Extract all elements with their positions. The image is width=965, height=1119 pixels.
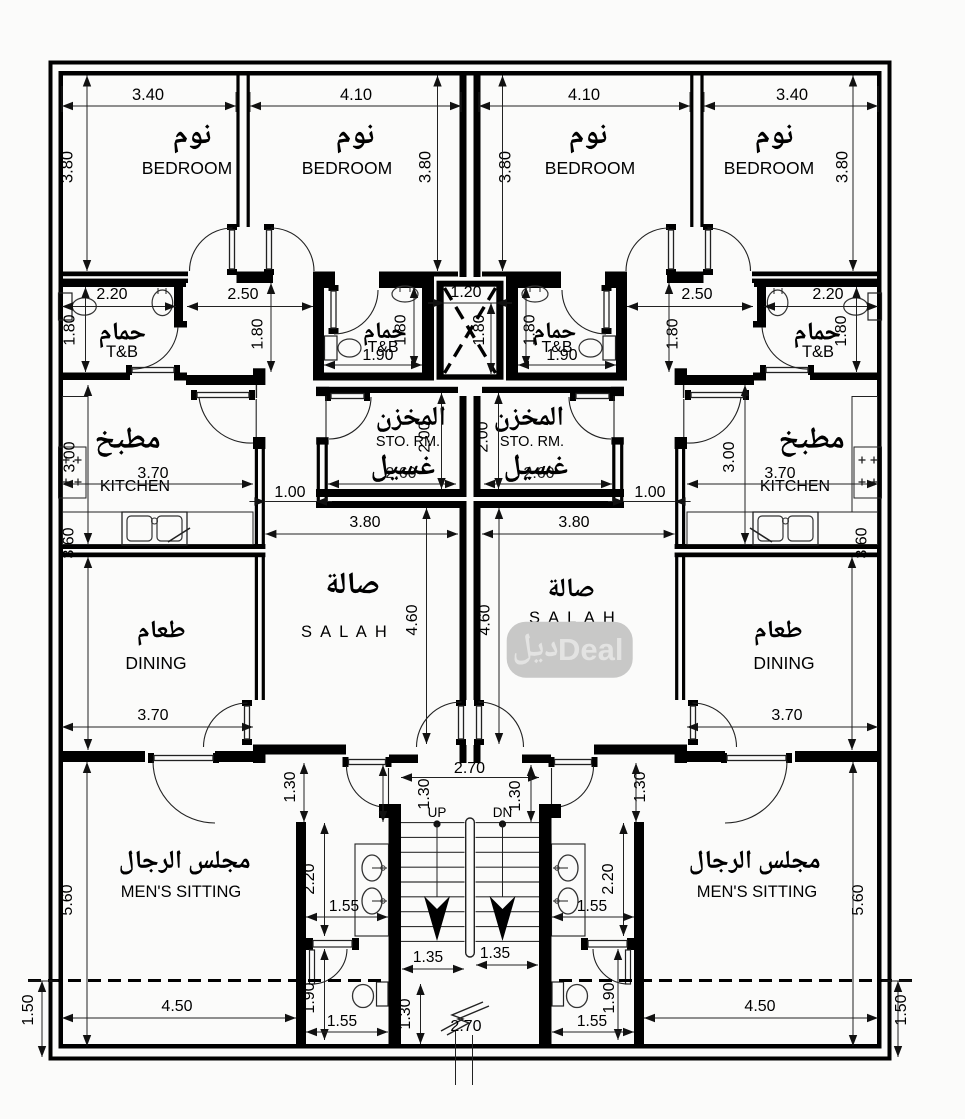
svg-text:1.30: 1.30 xyxy=(632,771,649,802)
svg-text:1.80: 1.80 xyxy=(522,314,539,345)
svg-text:UP: UP xyxy=(428,805,447,820)
svg-text:4.50: 4.50 xyxy=(161,998,192,1015)
svg-text:2.20: 2.20 xyxy=(301,863,318,894)
svg-text:3.80: 3.80 xyxy=(349,514,380,531)
svg-text:2.20: 2.20 xyxy=(600,863,617,894)
svg-text:3.70: 3.70 xyxy=(764,465,795,482)
svg-text:3.60: 3.60 xyxy=(61,527,78,558)
svg-text:1.90: 1.90 xyxy=(546,347,577,364)
svg-text:BEDROOM: BEDROOM xyxy=(142,158,232,178)
svg-text:1.30: 1.30 xyxy=(397,998,414,1029)
svg-text:1.80: 1.80 xyxy=(393,314,410,345)
svg-text:1.90: 1.90 xyxy=(362,347,393,364)
svg-text:1.50: 1.50 xyxy=(20,994,37,1025)
svg-text:1.55: 1.55 xyxy=(327,1013,357,1030)
svg-text:MEN'S SITTING: MEN'S SITTING xyxy=(697,883,818,901)
svg-text:3.80: 3.80 xyxy=(558,514,589,531)
svg-text:1.20: 1.20 xyxy=(450,284,481,301)
svg-text:3.80: 3.80 xyxy=(834,151,852,183)
svg-text:1.80: 1.80 xyxy=(62,314,79,345)
svg-text:3.00: 3.00 xyxy=(721,441,738,472)
svg-text:DINING: DINING xyxy=(753,653,814,673)
svg-text:3.70: 3.70 xyxy=(771,707,802,724)
svg-text:3.70: 3.70 xyxy=(137,707,168,724)
svg-text:4.10: 4.10 xyxy=(568,86,600,104)
svg-text:3.40: 3.40 xyxy=(132,86,164,104)
svg-text:T&B: T&B xyxy=(106,343,138,361)
svg-text:1.80: 1.80 xyxy=(471,314,488,345)
svg-text:3.80: 3.80 xyxy=(59,151,77,183)
svg-text:5.60: 5.60 xyxy=(59,884,76,915)
svg-text:1.90: 1.90 xyxy=(601,982,618,1013)
svg-text:3.40: 3.40 xyxy=(776,86,808,104)
svg-text:DN: DN xyxy=(493,805,513,820)
svg-text:3.80: 3.80 xyxy=(417,151,435,183)
svg-text:4.50: 4.50 xyxy=(744,998,775,1015)
svg-text:4.60: 4.60 xyxy=(477,604,494,635)
svg-text:3.60: 3.60 xyxy=(854,527,871,558)
svg-text:2.20: 2.20 xyxy=(96,286,127,303)
svg-text:T&B: T&B xyxy=(802,343,834,361)
svg-text:3.80: 3.80 xyxy=(497,151,515,183)
svg-text:1.35: 1.35 xyxy=(413,949,443,966)
svg-text:2.20: 2.20 xyxy=(812,286,843,303)
svg-text:BEDROOM: BEDROOM xyxy=(545,158,635,178)
svg-text:4.60: 4.60 xyxy=(404,604,421,635)
svg-text:3.00: 3.00 xyxy=(62,441,79,472)
svg-text:1.55: 1.55 xyxy=(577,1013,607,1030)
svg-text:BEDROOM: BEDROOM xyxy=(302,158,392,178)
svg-text:1.35: 1.35 xyxy=(480,945,510,962)
svg-text:1.80: 1.80 xyxy=(250,318,267,349)
svg-text:Deal: Deal xyxy=(558,632,623,667)
svg-text:S A L A H: S A L A H xyxy=(301,623,389,641)
svg-text:2.00: 2.00 xyxy=(475,421,492,452)
svg-text:1.80: 1.80 xyxy=(833,315,850,346)
svg-text:1.55: 1.55 xyxy=(329,898,359,915)
svg-text:1.90: 1.90 xyxy=(301,982,318,1013)
svg-text:2.00: 2.00 xyxy=(417,421,434,452)
svg-text:1.30: 1.30 xyxy=(282,771,299,802)
svg-text:2.70: 2.70 xyxy=(450,1018,481,1035)
svg-text:2.50: 2.50 xyxy=(681,286,712,303)
svg-text:1.80: 1.80 xyxy=(665,318,682,349)
svg-text:1.55: 1.55 xyxy=(577,898,607,915)
svg-text:2.70: 2.70 xyxy=(454,760,485,777)
svg-text:2.50: 2.50 xyxy=(227,286,258,303)
svg-text:3.70: 3.70 xyxy=(137,465,168,482)
svg-text:1.00: 1.00 xyxy=(634,484,665,501)
svg-text:DINING: DINING xyxy=(125,653,186,673)
svg-text:BEDROOM: BEDROOM xyxy=(724,158,814,178)
svg-text:MEN'S SITTING: MEN'S SITTING xyxy=(121,883,242,901)
svg-text:1.00: 1.00 xyxy=(274,484,305,501)
svg-text:1.50: 1.50 xyxy=(893,994,910,1025)
svg-text:STO. RM.: STO. RM. xyxy=(500,434,564,450)
svg-text:4.10: 4.10 xyxy=(340,86,372,104)
